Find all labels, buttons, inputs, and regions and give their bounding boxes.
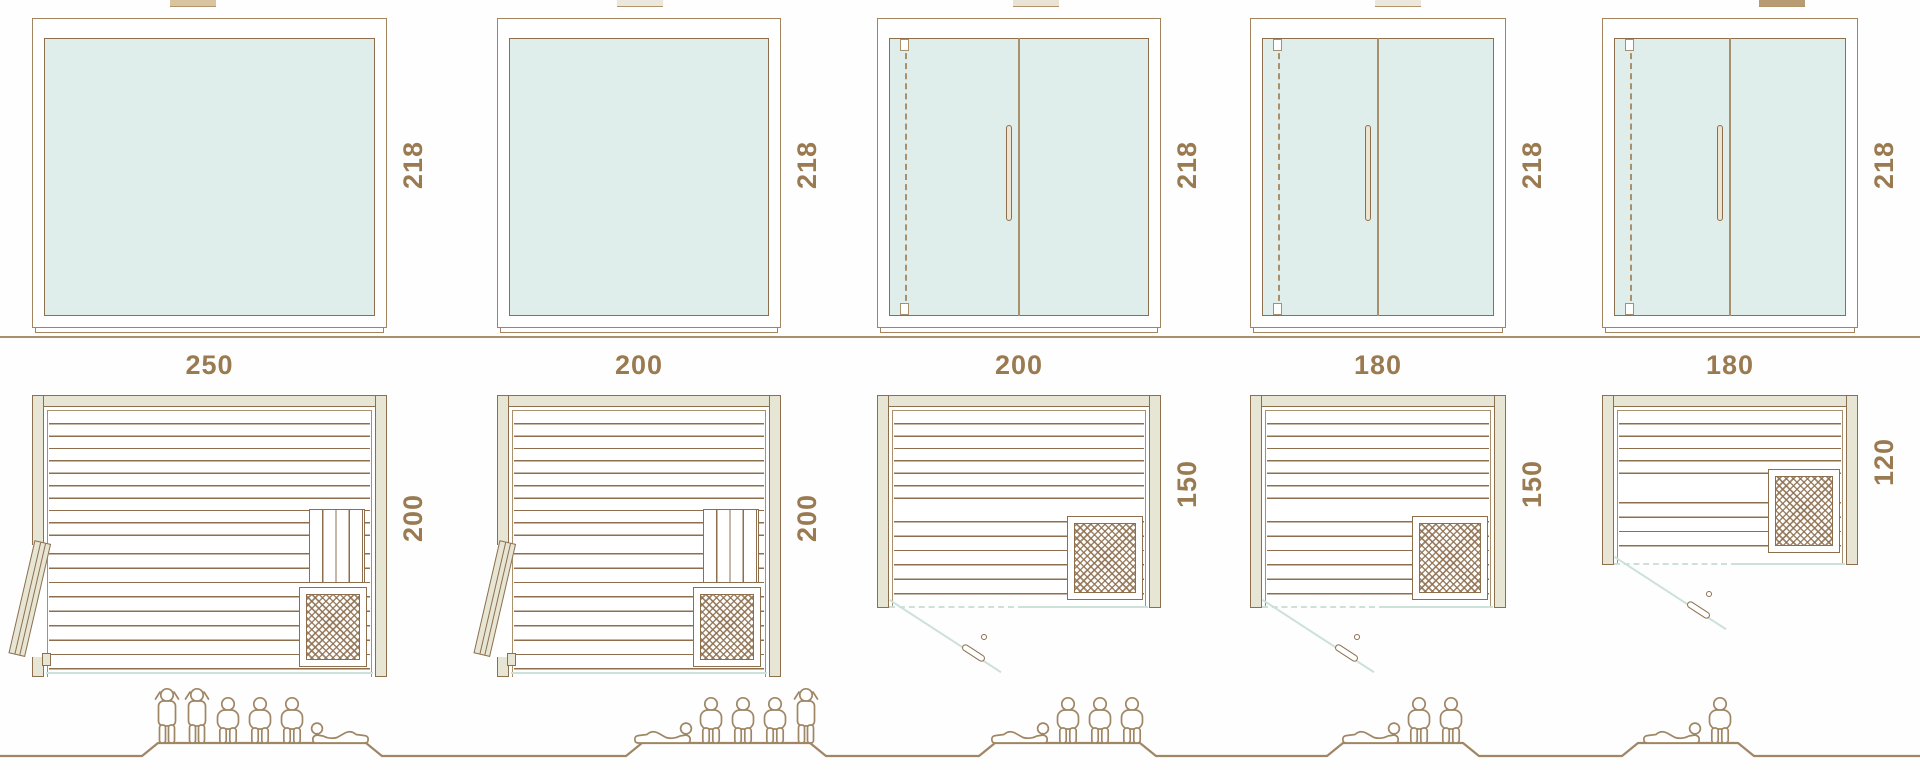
hinge-bottom-icon bbox=[1273, 303, 1282, 315]
door-swing-handle-icon bbox=[1334, 643, 1360, 663]
elevation-base bbox=[1253, 327, 1503, 333]
elevation-base bbox=[1605, 327, 1855, 333]
wall-left bbox=[1250, 395, 1262, 608]
top-crop-artifact bbox=[1013, 0, 1059, 7]
person-sitting-icon bbox=[282, 698, 303, 743]
wall-left bbox=[877, 395, 889, 608]
floor-plan bbox=[32, 395, 387, 677]
hinge-dashed-line bbox=[1278, 43, 1280, 311]
person-sitting-icon bbox=[1710, 698, 1731, 743]
plan-interior bbox=[1614, 407, 1846, 565]
capacity-figures bbox=[988, 673, 1148, 743]
front-elevation bbox=[497, 18, 781, 328]
plan-interior bbox=[1262, 407, 1494, 608]
front-glass-solid-line bbox=[1379, 606, 1493, 608]
front-width-dimension: 250 bbox=[32, 350, 387, 380]
person-standing-icon bbox=[186, 689, 209, 743]
bench-slats-upper bbox=[1267, 412, 1489, 504]
person-lying-icon bbox=[991, 723, 1048, 743]
front-glass-solid-line bbox=[1018, 606, 1148, 608]
heater-grille bbox=[700, 594, 754, 660]
floor-plan bbox=[497, 395, 781, 677]
hinge-bottom-icon bbox=[1625, 303, 1634, 315]
hinge-dashed-line bbox=[1630, 43, 1632, 311]
plan-depth-dimension: 150 bbox=[1517, 444, 1547, 524]
glass-panel bbox=[509, 38, 769, 316]
door-handle bbox=[1717, 125, 1723, 221]
person-lying-icon bbox=[1644, 723, 1701, 743]
hinge-top-icon bbox=[1273, 39, 1282, 51]
door-divider bbox=[1018, 38, 1020, 316]
wall-top bbox=[497, 395, 781, 407]
front-elevation bbox=[877, 18, 1161, 328]
front-width-dimension: 200 bbox=[877, 350, 1161, 380]
front-width-dimension: 200 bbox=[497, 350, 781, 380]
ground-line-elevation bbox=[0, 336, 1920, 338]
wall-right bbox=[1494, 395, 1506, 608]
wall-right bbox=[769, 395, 781, 677]
floor-plan bbox=[1250, 395, 1506, 608]
hinge-dashed-line bbox=[905, 43, 907, 311]
person-lying-icon bbox=[1343, 723, 1400, 743]
front-elevation bbox=[32, 18, 387, 328]
front-height-dimension: 218 bbox=[1869, 125, 1899, 205]
person-lying-icon bbox=[635, 723, 692, 743]
front-elevation bbox=[1602, 18, 1858, 328]
plan-depth-dimension: 200 bbox=[398, 478, 428, 558]
heater-grille bbox=[1074, 523, 1136, 593]
front-glass-solid-line bbox=[1731, 563, 1845, 565]
top-crop-artifact bbox=[1375, 0, 1421, 7]
wall-left bbox=[1602, 395, 1614, 565]
floor-plan bbox=[1602, 395, 1858, 565]
glass-panel bbox=[44, 38, 375, 316]
wall-right bbox=[1149, 395, 1161, 608]
person-standing-icon bbox=[156, 689, 179, 743]
plan-interior bbox=[509, 407, 769, 677]
person-sitting-icon bbox=[701, 698, 722, 743]
front-width-dimension: 180 bbox=[1602, 350, 1858, 380]
person-sitting-icon bbox=[1057, 698, 1078, 743]
person-lying-icon bbox=[312, 723, 369, 743]
door-swing-handle-knob-icon bbox=[1354, 634, 1360, 640]
door-jamb-notch bbox=[507, 653, 516, 666]
top-crop-artifact bbox=[617, 0, 663, 7]
door-swing-handle-knob-icon bbox=[981, 634, 987, 640]
capacity-figures bbox=[1640, 673, 1736, 743]
capacity-figures bbox=[1339, 673, 1467, 743]
front-opening-dashed-line bbox=[889, 606, 1014, 608]
plan-interior bbox=[44, 407, 375, 677]
person-sitting-icon bbox=[1409, 698, 1430, 743]
person-sitting-icon bbox=[218, 698, 239, 743]
person-standing-icon bbox=[795, 689, 818, 743]
front-height-dimension: 218 bbox=[1172, 125, 1202, 205]
capacity-figures bbox=[1339, 673, 1467, 743]
heater bbox=[299, 587, 367, 667]
elevation-base bbox=[500, 327, 778, 333]
heater bbox=[693, 587, 761, 667]
capacity-figures bbox=[152, 673, 372, 743]
heater-grille bbox=[1775, 476, 1833, 546]
ground-path bbox=[0, 743, 1920, 756]
front-opening-dashed-line bbox=[1614, 563, 1727, 565]
person-sitting-icon bbox=[733, 698, 754, 743]
hinge-top-icon bbox=[1625, 39, 1634, 51]
front-width-dimension: 180 bbox=[1250, 350, 1506, 380]
wall-right bbox=[375, 395, 387, 677]
door-divider bbox=[1729, 38, 1731, 316]
door-swing-handle-knob-icon bbox=[1706, 591, 1712, 597]
plan-depth-dimension: 120 bbox=[1869, 422, 1899, 502]
hinge-bottom-icon bbox=[900, 303, 909, 315]
door-jamb-notch bbox=[42, 653, 51, 666]
person-sitting-icon bbox=[765, 698, 786, 743]
capacity-figures bbox=[152, 673, 372, 743]
front-height-dimension: 218 bbox=[792, 125, 822, 205]
plan-interior bbox=[889, 407, 1149, 608]
elevation-base bbox=[880, 327, 1158, 333]
door-swing-handle-icon bbox=[961, 643, 987, 663]
sauna-dimensions-diagram: 2502182002002182002002181501802181501802… bbox=[0, 0, 1920, 770]
capacity-figures bbox=[631, 673, 821, 743]
heater bbox=[1067, 516, 1143, 600]
capacity-figures bbox=[988, 673, 1148, 743]
heater-grille bbox=[1419, 523, 1481, 593]
capacity-figures bbox=[631, 673, 821, 743]
wall-top bbox=[32, 395, 387, 407]
duckboard-slats bbox=[309, 509, 365, 583]
plan-depth-dimension: 200 bbox=[792, 478, 822, 558]
door-divider bbox=[1377, 38, 1379, 316]
door-swing-handle-icon bbox=[1686, 600, 1712, 620]
door-handle bbox=[1006, 125, 1012, 221]
wall-top bbox=[877, 395, 1161, 407]
front-height-dimension: 218 bbox=[398, 125, 428, 205]
front-elevation bbox=[1250, 18, 1506, 328]
wall-right bbox=[1846, 395, 1858, 565]
person-sitting-icon bbox=[1121, 698, 1142, 743]
front-opening-dashed-line bbox=[1262, 606, 1375, 608]
bench-slats-upper bbox=[894, 412, 1144, 504]
floor-plan bbox=[877, 395, 1161, 608]
person-sitting-icon bbox=[1441, 698, 1462, 743]
heater bbox=[1768, 469, 1840, 553]
top-crop-artifact bbox=[170, 0, 216, 7]
hinge-top-icon bbox=[900, 39, 909, 51]
door-handle bbox=[1365, 125, 1371, 221]
person-sitting-icon bbox=[1089, 698, 1110, 743]
elevation-base bbox=[35, 327, 384, 333]
wall-top bbox=[1602, 395, 1858, 407]
plan-depth-dimension: 150 bbox=[1172, 444, 1202, 524]
heater bbox=[1412, 516, 1488, 600]
wall-top bbox=[1250, 395, 1506, 407]
duckboard-slats bbox=[703, 509, 759, 583]
front-height-dimension: 218 bbox=[1517, 125, 1547, 205]
heater-grille bbox=[306, 594, 360, 660]
person-sitting-icon bbox=[250, 698, 271, 743]
capacity-figures bbox=[1640, 673, 1736, 743]
top-crop-artifact bbox=[1759, 0, 1805, 7]
